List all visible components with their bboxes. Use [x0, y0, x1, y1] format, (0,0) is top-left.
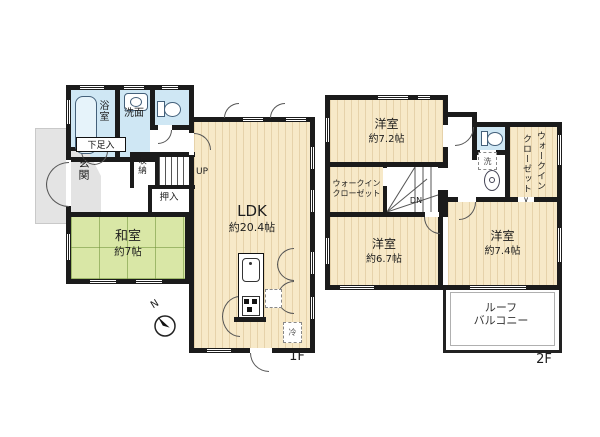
storage-label: 収納 [137, 156, 146, 186]
ldk-label: LDK [194, 203, 310, 220]
bedroom1-label: 洋室 [330, 118, 443, 131]
window [286, 117, 306, 122]
basin-drain-icon [489, 177, 495, 183]
appliance-dashed-box [265, 289, 282, 308]
window [90, 279, 116, 284]
stove-burner-icon [247, 307, 252, 312]
floor1-label: 1F [283, 350, 311, 364]
stairs-down-label: DN [402, 197, 430, 206]
entrance-label: 玄関 [78, 157, 89, 199]
window [124, 85, 144, 90]
window [207, 348, 231, 353]
wall-segment [505, 122, 510, 202]
faucet-icon [249, 262, 252, 265]
shoe-cabinet-label: 下足入 [76, 137, 126, 152]
wall-segment [472, 122, 562, 127]
window [66, 234, 71, 260]
wall-segment [155, 152, 159, 188]
wall-segment [185, 212, 194, 284]
toilet-bowl-icon [164, 102, 181, 117]
japanese-room-size: 約7帖 [96, 247, 160, 259]
stove-burner-icon [244, 299, 249, 304]
counter-base [234, 317, 266, 322]
bedroom3-label: 洋室 [448, 230, 557, 243]
wic-left-label-line2: クローゼット [330, 190, 383, 199]
wic-right-label-line1: ウォークイン [535, 131, 544, 197]
oshiire-label: 押入 [150, 193, 188, 203]
toilet-bowl-icon [487, 132, 503, 146]
window [310, 297, 315, 319]
wic-right-floor [510, 127, 557, 197]
shoe-cabinet-door-arc [94, 151, 108, 165]
bedroom2-label: 洋室 [330, 238, 438, 251]
window [80, 85, 104, 90]
refrigerator-box: 冷 [283, 322, 302, 343]
window [243, 117, 263, 122]
washroom-label: 洗面 [116, 108, 152, 119]
wall-segment [189, 117, 194, 212]
door-arc [158, 130, 172, 144]
window [66, 100, 71, 124]
balcony-label-line2: バルコニー [443, 315, 559, 327]
door-arc [250, 353, 269, 372]
stove-burner-icon [252, 299, 257, 304]
wall-segment [150, 125, 194, 130]
door-opening [443, 125, 448, 147]
window [310, 252, 315, 274]
wall-segment [130, 152, 134, 188]
window [310, 190, 315, 212]
window [418, 95, 430, 100]
sink-basin-icon [130, 97, 142, 107]
window [557, 228, 562, 262]
bedroom1-size: 約7.2帖 [330, 134, 443, 145]
ldk-size: 約20.4帖 [194, 222, 310, 234]
wall-segment [148, 185, 195, 189]
door-arc [224, 103, 239, 118]
window [310, 147, 315, 169]
floor-plan-canvas: 冷 浴室 洗面 下足入 玄関 収納 UP 押入 和室 約7帖 LDK 約20.4… [0, 0, 600, 437]
japanese-room-label: 和室 [96, 230, 160, 244]
bedroom3-size: 約7.4帖 [448, 246, 557, 257]
washer-box: 洗 [478, 152, 497, 170]
window [470, 285, 526, 290]
wall-segment [66, 279, 194, 284]
bedroom2-size: 約6.7帖 [330, 254, 438, 265]
wall-segment [189, 284, 194, 353]
stairs-up-label: UP [191, 168, 213, 178]
wic-entry-mark: ∨ [519, 196, 533, 205]
door-opening [438, 168, 448, 190]
window [378, 95, 408, 100]
compass-icon [150, 310, 180, 340]
window [162, 85, 178, 90]
door-arc [270, 103, 285, 118]
window [557, 135, 562, 165]
window [136, 279, 162, 284]
floor2-label: 2F [530, 353, 558, 367]
door-opening [383, 168, 387, 186]
balcony-label-line1: ルーフ [443, 302, 559, 314]
window [340, 285, 374, 290]
wic-left-label-line1: ウォークイン [330, 180, 383, 189]
wall-segment [66, 212, 194, 217]
wic-right-label-line2: クローゼット [521, 134, 530, 200]
